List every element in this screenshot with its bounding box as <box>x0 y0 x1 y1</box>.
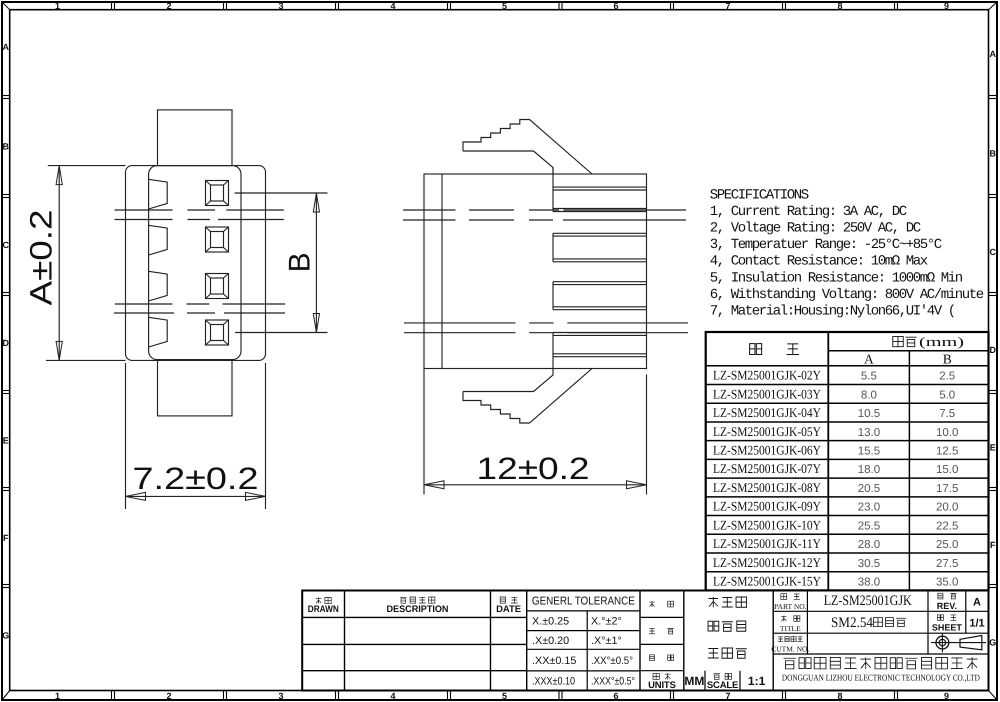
svg-text:17.5: 17.5 <box>936 483 958 495</box>
svg-text:20.5: 20.5 <box>858 483 880 495</box>
svg-text:6, Withstanding Voltang: 800V: 6, Withstanding Voltang: 800V AC/minute <box>710 287 984 303</box>
svg-text:7.2±0.2: 7.2±0.2 <box>133 461 259 496</box>
svg-text:LZ-SM25001GJK: LZ-SM25001GJK <box>824 593 912 609</box>
svg-text:28.0: 28.0 <box>858 539 880 551</box>
svg-text:9: 9 <box>944 691 949 701</box>
svg-text:SHEET: SHEET <box>932 623 963 633</box>
svg-text:35.0: 35.0 <box>936 577 958 589</box>
svg-text:6: 6 <box>613 691 618 701</box>
svg-text:X.±0.25: X.±0.25 <box>532 616 569 628</box>
svg-text:MM: MM <box>684 674 704 688</box>
svg-text:12.5: 12.5 <box>936 445 958 457</box>
svg-text:DONGGUAN LIZHOU ELECTRONIC TEC: DONGGUAN LIZHOU ELECTRONIC TECHNOLOGY CO… <box>782 672 980 682</box>
svg-text:B: B <box>990 149 997 159</box>
svg-text:A: A <box>973 597 981 609</box>
svg-text:DATE: DATE <box>496 604 521 615</box>
svg-text:9: 9 <box>944 1 949 11</box>
svg-text:PART NO.: PART NO. <box>774 602 807 611</box>
svg-text:1, Current Rating: 3A AC, DC: 1, Current Rating: 3A AC, DC <box>710 204 907 220</box>
svg-text:.X°±1°: .X°±1° <box>591 635 622 647</box>
svg-text:C: C <box>3 240 10 250</box>
svg-text:8: 8 <box>837 691 842 701</box>
svg-text:F: F <box>3 533 9 543</box>
svg-text:A: A <box>3 42 10 52</box>
svg-text:15.0: 15.0 <box>936 464 958 476</box>
svg-text:1: 1 <box>55 1 60 11</box>
svg-text:SCALE: SCALE <box>707 680 738 691</box>
svg-text:5: 5 <box>502 691 507 701</box>
svg-text:.XXX°±0.5°: .XXX°±0.5° <box>591 676 635 688</box>
svg-text:38.0: 38.0 <box>858 577 880 589</box>
svg-text:27.5: 27.5 <box>936 558 958 570</box>
svg-text:5, Insulation Resistance: 1000: 5, Insulation Resistance: 1000mΩ Min <box>710 270 963 286</box>
svg-text:5.0: 5.0 <box>939 389 955 401</box>
svg-text:20.0: 20.0 <box>936 502 958 514</box>
svg-text:LZ-SM25001GJK-02Y: LZ-SM25001GJK-02Y <box>713 368 821 383</box>
svg-text:LZ-SM25001GJK-03Y: LZ-SM25001GJK-03Y <box>713 386 821 401</box>
svg-text:X.°±2°: X.°±2° <box>591 616 622 628</box>
svg-text:.X±0.20: .X±0.20 <box>532 635 569 647</box>
svg-text:3: 3 <box>278 691 283 701</box>
svg-text:LZ-SM25001GJK-04Y: LZ-SM25001GJK-04Y <box>713 405 821 420</box>
svg-text:CUTM. NO.: CUTM. NO. <box>771 645 809 654</box>
svg-text:25.0: 25.0 <box>936 539 958 551</box>
svg-text:12±0.2: 12±0.2 <box>477 451 590 486</box>
svg-text:LZ-SM25001GJK-12Y: LZ-SM25001GJK-12Y <box>713 555 821 570</box>
svg-text:D: D <box>3 338 10 348</box>
svg-text:7.5: 7.5 <box>939 408 955 420</box>
svg-text:G: G <box>2 631 9 641</box>
svg-text:4, Contact Resistance: 10mΩ Ma: 4, Contact Resistance: 10mΩ Max <box>710 254 928 270</box>
svg-text:LZ-SM25001GJK-11Y: LZ-SM25001GJK-11Y <box>713 536 821 551</box>
svg-text:(mm): (mm) <box>919 334 964 349</box>
svg-text:.XX±0.15: .XX±0.15 <box>532 655 576 667</box>
svg-text:.XXX±0.10: .XXX±0.10 <box>532 676 575 688</box>
svg-text:1:1: 1:1 <box>748 674 766 688</box>
svg-text:DESCRIPTION: DESCRIPTION <box>387 604 449 615</box>
svg-text:22.5: 22.5 <box>936 520 958 532</box>
svg-text:B: B <box>3 142 10 152</box>
svg-text:13.0: 13.0 <box>858 427 880 439</box>
svg-text:TITLE: TITLE <box>780 624 801 633</box>
svg-text:LZ-SM25001GJK-10Y: LZ-SM25001GJK-10Y <box>713 517 821 532</box>
svg-text:1: 1 <box>55 691 60 701</box>
svg-text:SM2.54: SM2.54 <box>831 615 874 631</box>
svg-text:2.5: 2.5 <box>939 371 955 383</box>
svg-text:4: 4 <box>390 691 395 701</box>
svg-text:D: D <box>990 345 997 355</box>
svg-text:E: E <box>990 443 996 453</box>
svg-text:C: C <box>990 247 997 257</box>
svg-text:SPECIFICATIONS: SPECIFICATIONS <box>710 187 809 203</box>
svg-text:8.0: 8.0 <box>861 389 877 401</box>
svg-text:LZ-SM25001GJK-15Y: LZ-SM25001GJK-15Y <box>713 574 821 589</box>
svg-text:5.5: 5.5 <box>861 371 877 383</box>
svg-text:7: 7 <box>725 1 730 11</box>
svg-text:A: A <box>864 351 874 366</box>
svg-text:10.5: 10.5 <box>858 408 880 420</box>
svg-text:LZ-SM25001GJK-09Y: LZ-SM25001GJK-09Y <box>713 499 821 514</box>
svg-text:REV.: REV. <box>937 601 957 611</box>
svg-text:15.5: 15.5 <box>858 445 880 457</box>
svg-text:2, Voltage Rating: 250V AC, DC: 2, Voltage Rating: 250V AC, DC <box>710 221 921 237</box>
svg-text:3, Temperatuer Range: -25°C~+8: 3, Temperatuer Range: -25°C~+85°C <box>710 237 942 253</box>
svg-text:E: E <box>3 436 9 446</box>
svg-text:25.5: 25.5 <box>858 520 880 532</box>
svg-text:UNITS: UNITS <box>648 680 676 691</box>
svg-text:LZ-SM25001GJK-07Y: LZ-SM25001GJK-07Y <box>713 461 821 476</box>
svg-text:LZ-SM25001GJK-08Y: LZ-SM25001GJK-08Y <box>713 480 821 495</box>
svg-text:3: 3 <box>278 1 283 11</box>
svg-text:6: 6 <box>613 1 618 11</box>
svg-text:GENERL TOLERANCE: GENERL TOLERANCE <box>532 596 635 608</box>
svg-text:18.0: 18.0 <box>858 464 880 476</box>
svg-text:F: F <box>990 540 996 550</box>
svg-text:30.5: 30.5 <box>858 558 880 570</box>
svg-text:B: B <box>943 351 952 366</box>
svg-text:LZ-SM25001GJK-05Y: LZ-SM25001GJK-05Y <box>713 424 821 439</box>
svg-text:1/1: 1/1 <box>969 618 984 630</box>
svg-text:A: A <box>990 49 997 59</box>
svg-text:.XX°±0.5°: .XX°±0.5° <box>591 655 633 667</box>
svg-text:4: 4 <box>390 1 395 11</box>
svg-text:5: 5 <box>502 1 507 11</box>
svg-text:23.0: 23.0 <box>858 502 880 514</box>
svg-text:8: 8 <box>837 1 842 11</box>
svg-text:A±0.2: A±0.2 <box>24 210 59 306</box>
svg-text:B: B <box>284 252 317 272</box>
svg-text:2: 2 <box>166 691 171 701</box>
svg-text:10.0: 10.0 <box>936 427 958 439</box>
svg-text:7, Material:Housing:Nylon66,UI: 7, Material:Housing:Nylon66,UI'4V ( <box>710 304 955 320</box>
svg-text:G: G <box>989 638 996 648</box>
svg-text:LZ-SM25001GJK-06Y: LZ-SM25001GJK-06Y <box>713 442 821 457</box>
svg-text:DRAWN: DRAWN <box>308 604 339 615</box>
svg-text:2: 2 <box>166 1 171 11</box>
svg-text:7: 7 <box>725 691 730 701</box>
